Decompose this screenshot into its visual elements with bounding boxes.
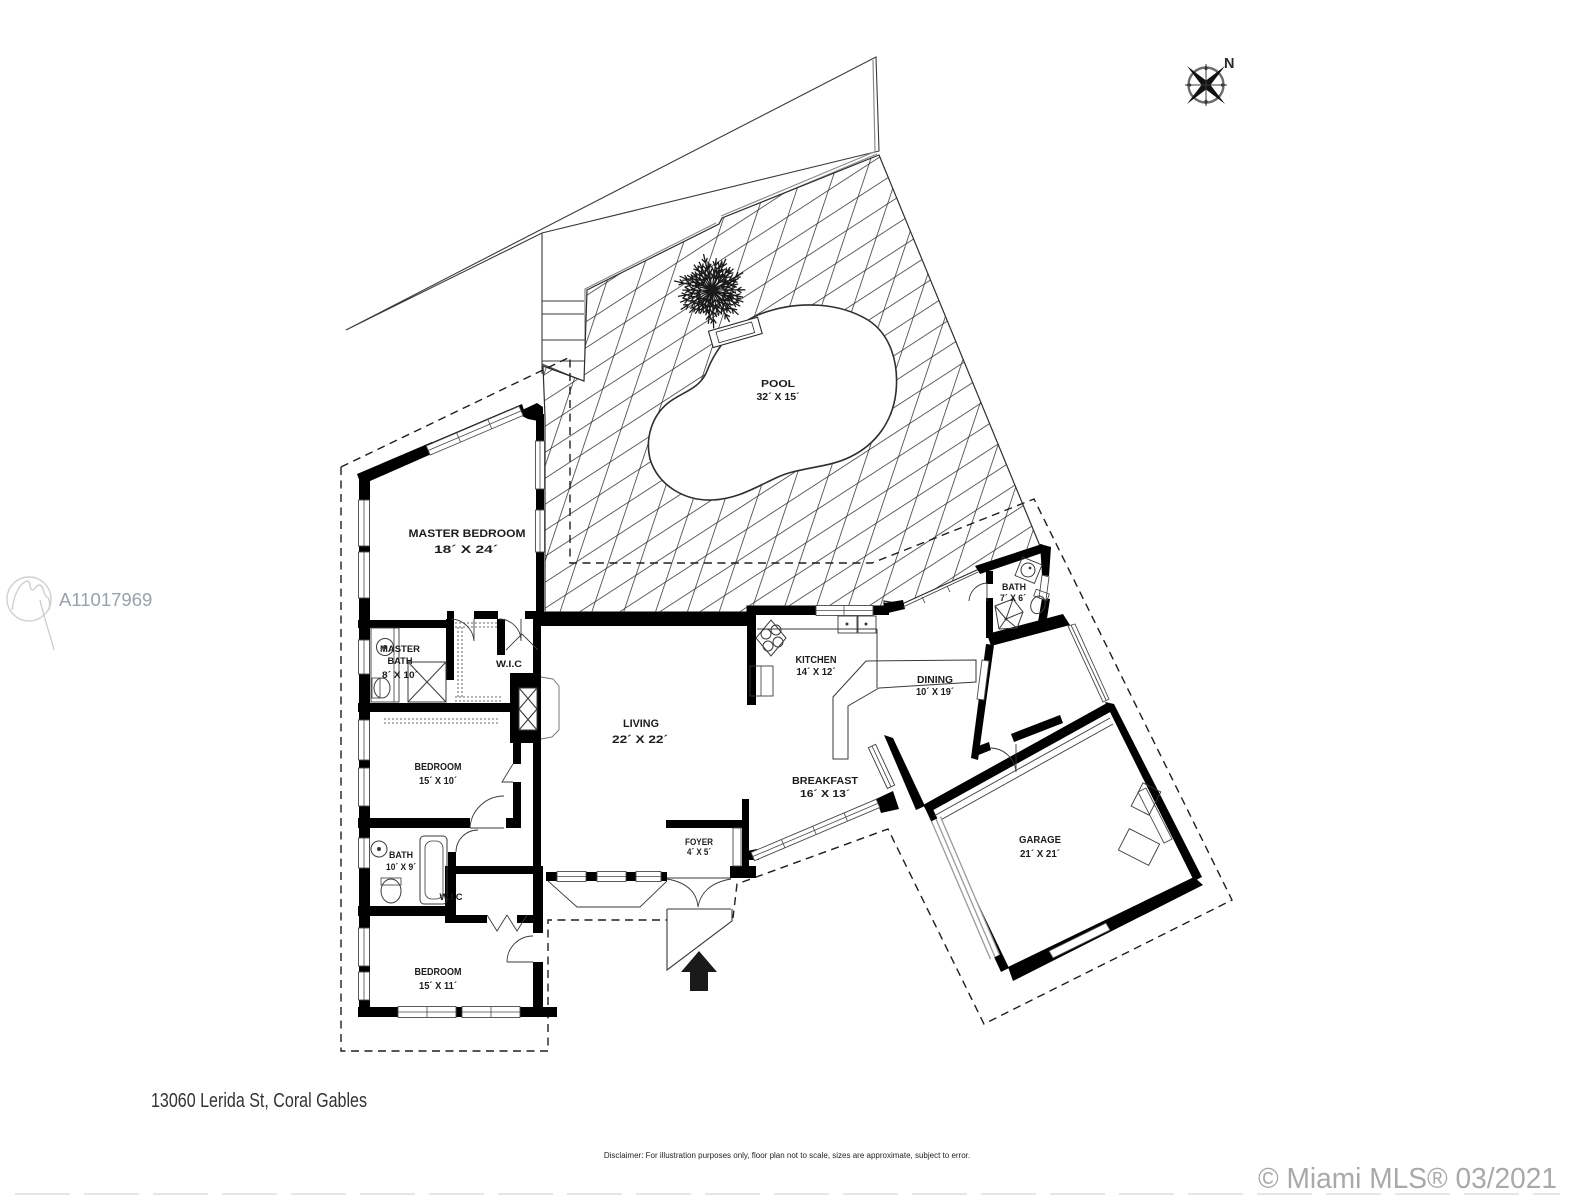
svg-text:15´ X 10´: 15´ X 10´	[419, 775, 457, 787]
svg-text:7´ X 6´: 7´ X 6´	[1000, 593, 1026, 604]
svg-text:FOYER: FOYER	[685, 837, 713, 847]
svg-text:W.I.C: W.I.C	[440, 892, 463, 903]
svg-text:Disclaimer: For illustration p: Disclaimer: For illustration purposes on…	[604, 1151, 970, 1160]
svg-text:22´ X 22´: 22´ X 22´	[612, 734, 668, 746]
svg-text:16´ X 13´: 16´ X 13´	[800, 788, 851, 800]
svg-text:BREAKFAST: BREAKFAST	[792, 775, 859, 787]
svg-text:MASTER: MASTER	[380, 644, 420, 655]
svg-text:© Miami MLS® 03/2021: © Miami MLS® 03/2021	[1258, 1163, 1557, 1195]
svg-text:A11017969: A11017969	[59, 589, 152, 610]
svg-text:N: N	[1224, 56, 1234, 72]
svg-text:GARAGE: GARAGE	[1019, 834, 1061, 846]
svg-text:W.I.C: W.I.C	[496, 659, 522, 670]
svg-text:14´ X 12´: 14´ X 12´	[797, 666, 836, 678]
svg-text:32´ X 15´: 32´ X 15´	[757, 391, 800, 403]
svg-text:BATH: BATH	[1002, 582, 1026, 593]
svg-text:BEDROOM: BEDROOM	[415, 966, 462, 978]
svg-text:13060 Lerida St, Coral Gables: 13060 Lerida St, Coral Gables	[151, 1089, 367, 1112]
svg-text:21´ X 21´: 21´ X 21´	[1020, 848, 1060, 860]
svg-text:10´ X 9´: 10´ X 9´	[386, 862, 416, 873]
svg-text:BATH: BATH	[388, 656, 413, 667]
svg-text:BEDROOM: BEDROOM	[415, 761, 462, 773]
svg-text:POOL: POOL	[761, 378, 796, 390]
svg-text:18´ X 24´: 18´ X 24´	[434, 544, 498, 556]
svg-text:8´ X 10´: 8´ X 10´	[382, 670, 418, 681]
svg-text:15´ X 11´: 15´ X 11´	[419, 980, 457, 992]
svg-text:LIVING: LIVING	[623, 718, 659, 730]
svg-text:KITCHEN: KITCHEN	[796, 654, 837, 666]
svg-text:BATH: BATH	[389, 850, 413, 861]
svg-text:10´ X 19´: 10´ X 19´	[916, 686, 954, 698]
svg-text:DINING: DINING	[917, 674, 953, 686]
svg-text:MASTER BEDROOM: MASTER BEDROOM	[409, 528, 526, 540]
svg-text:4´ X 5´: 4´ X 5´	[687, 847, 711, 857]
